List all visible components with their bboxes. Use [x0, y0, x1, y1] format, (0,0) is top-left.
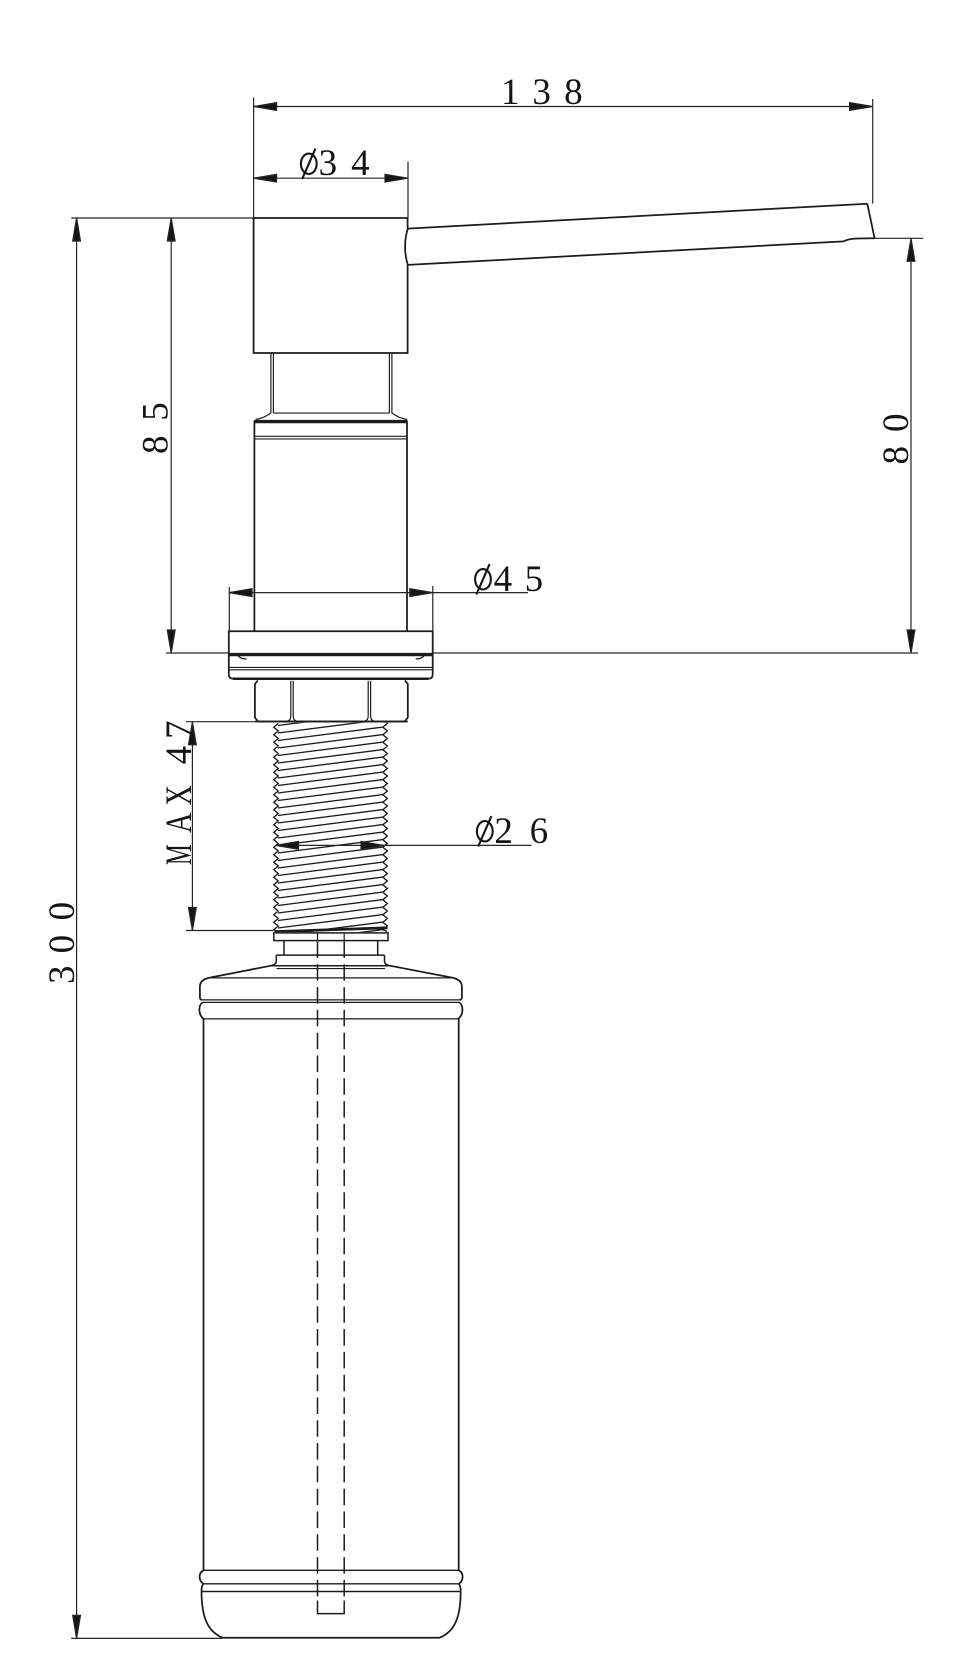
svg-text:0: 0 — [876, 413, 917, 432]
svg-text:8: 8 — [135, 435, 176, 454]
svg-text:8: 8 — [876, 446, 917, 465]
svg-text:M: M — [157, 844, 199, 865]
svg-text:0: 0 — [42, 935, 83, 954]
svg-text:3: 3 — [42, 966, 83, 985]
svg-text:A: A — [159, 812, 200, 833]
svg-text:4: 4 — [159, 746, 200, 765]
svg-text:5: 5 — [135, 402, 176, 421]
svg-text:0: 0 — [42, 902, 83, 921]
svg-text:X: X — [159, 785, 200, 806]
svg-text:7: 7 — [159, 720, 200, 739]
svg-text:138: 138 — [501, 72, 583, 113]
